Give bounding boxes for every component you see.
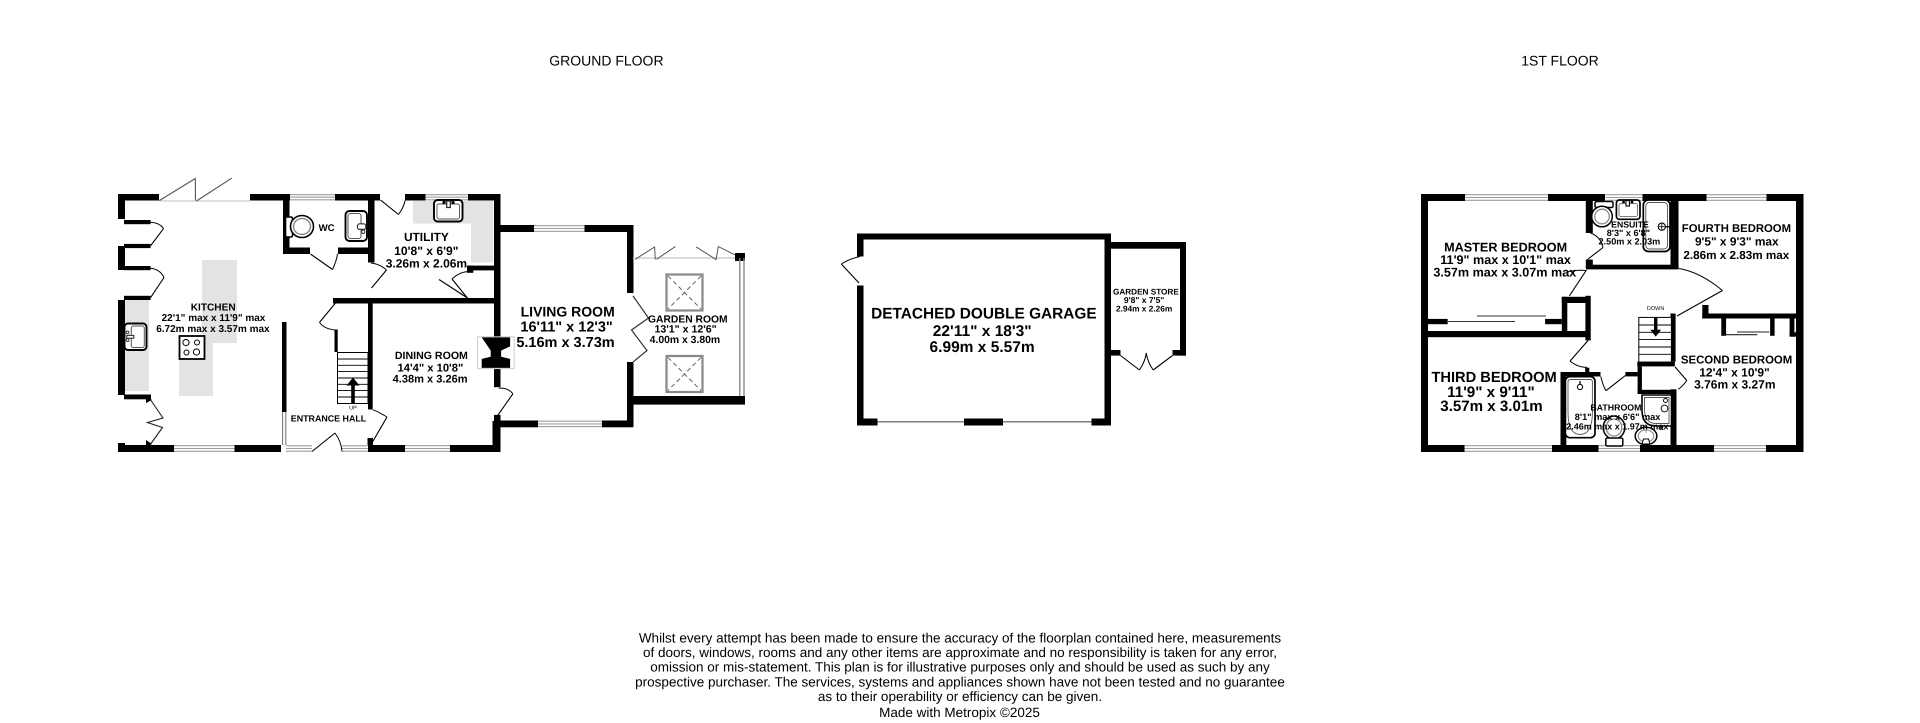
- svg-text:GROUND FLOOR: GROUND FLOOR: [549, 53, 663, 69]
- svg-text:22'1" max x 11'9" max: 22'1" max x 11'9" max: [162, 313, 266, 324]
- svg-text:2.94m x 2.26m: 2.94m x 2.26m: [1116, 303, 1172, 313]
- svg-text:8'1" max x 6'6" max: 8'1" max x 6'6" max: [1575, 412, 1662, 422]
- svg-text:22'11" x 18'3": 22'11" x 18'3": [933, 323, 1032, 340]
- svg-text:omission or mis-statement. Thi: omission or mis-statement. This plan is …: [650, 660, 1270, 675]
- svg-text:LIVING ROOM: LIVING ROOM: [521, 303, 615, 319]
- svg-text:9'5" x 9'3" max: 9'5" x 9'3" max: [1695, 235, 1779, 249]
- svg-text:prospective purchaser. The ser: prospective purchaser. The services, sys…: [635, 674, 1285, 689]
- svg-text:ENTRANCE HALL: ENTRANCE HALL: [291, 413, 367, 423]
- svg-text:UP: UP: [349, 406, 357, 412]
- svg-text:2.86m x 2.83m max: 2.86m x 2.83m max: [1683, 249, 1789, 262]
- svg-text:6.72m max x 3.57m max: 6.72m max x 3.57m max: [156, 324, 270, 335]
- svg-text:DETACHED DOUBLE GARAGE: DETACHED DOUBLE GARAGE: [871, 306, 1096, 323]
- svg-text:2.46m max x 1.97m max: 2.46m max x 1.97m max: [1566, 422, 1668, 432]
- svg-text:4.38m x 3.26m: 4.38m x 3.26m: [393, 374, 468, 386]
- svg-text:Made with Metropix ©2025: Made with Metropix ©2025: [879, 705, 1040, 720]
- svg-text:FOURTH BEDROOM: FOURTH BEDROOM: [1682, 223, 1791, 235]
- svg-text:6.99m x 5.57m: 6.99m x 5.57m: [930, 339, 1035, 356]
- svg-text:as to their operability or eff: as to their operability or efficiency ca…: [818, 689, 1102, 704]
- svg-text:of doors, windows, rooms and a: of doors, windows, rooms and any other i…: [643, 645, 1277, 660]
- svg-text:14'4" x 10'8": 14'4" x 10'8": [398, 362, 464, 374]
- svg-text:WC: WC: [319, 223, 335, 234]
- svg-text:4.00m x 3.80m: 4.00m x 3.80m: [650, 335, 720, 346]
- svg-text:DOWN: DOWN: [1647, 306, 1664, 312]
- svg-text:3.57m max x 3.07m max: 3.57m max x 3.07m max: [1433, 265, 1576, 279]
- svg-text:1ST FLOOR: 1ST FLOOR: [1521, 53, 1599, 69]
- svg-text:5.16m x 3.73m: 5.16m x 3.73m: [516, 335, 614, 351]
- svg-text:UTILITY: UTILITY: [404, 230, 449, 244]
- svg-text:3.26m x 2.06m: 3.26m x 2.06m: [386, 256, 467, 270]
- svg-text:13'1" x 12'6": 13'1" x 12'6": [654, 324, 716, 336]
- svg-text:DINING ROOM: DINING ROOM: [395, 350, 468, 362]
- svg-text:2.50m x 2.03m: 2.50m x 2.03m: [1599, 237, 1661, 247]
- svg-text:Whilst every attempt has been: Whilst every attempt has been made to en…: [639, 631, 1282, 646]
- svg-text:BATHROOM: BATHROOM: [1590, 402, 1641, 412]
- svg-text:3.76m x 3.27m: 3.76m x 3.27m: [1694, 378, 1775, 392]
- svg-text:3.57m x 3.01m: 3.57m x 3.01m: [1440, 398, 1542, 415]
- svg-text:16'11" x 12'3": 16'11" x 12'3": [520, 320, 612, 336]
- svg-text:KITCHEN: KITCHEN: [191, 302, 236, 313]
